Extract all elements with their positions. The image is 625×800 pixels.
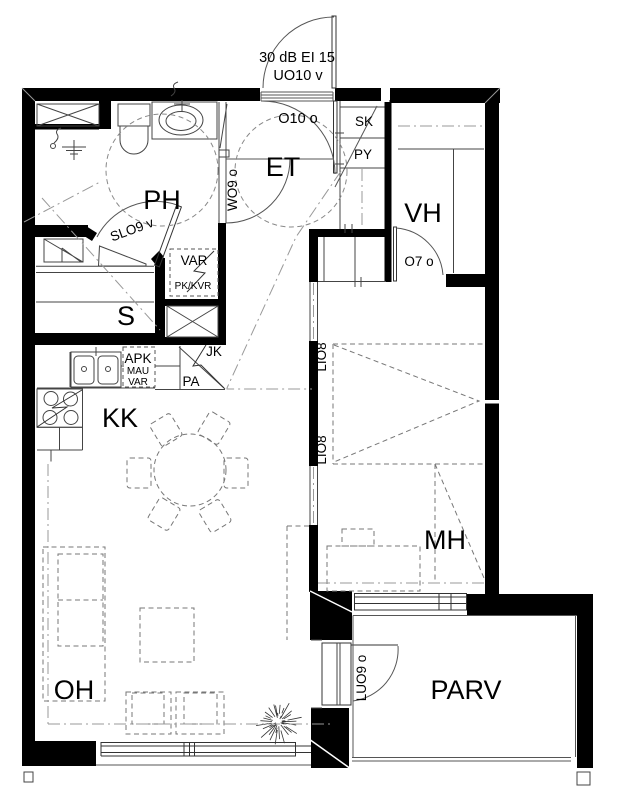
svg-text:LIO8: LIO8 (314, 342, 329, 371)
svg-text:VAR: VAR (128, 377, 148, 388)
svg-text:MH: MH (424, 525, 466, 555)
svg-text:SK: SK (355, 114, 373, 129)
svg-text:PARV: PARV (430, 675, 501, 705)
svg-text:PH: PH (143, 185, 181, 215)
svg-text:S: S (117, 301, 135, 331)
svg-text:30 dB EI 15: 30 dB EI 15 (259, 50, 335, 66)
svg-text:OH: OH (54, 675, 95, 705)
svg-text:KK: KK (102, 403, 138, 433)
svg-text:VAR: VAR (181, 253, 208, 268)
svg-text:WO9 o: WO9 o (225, 169, 240, 211)
svg-text:LIO8: LIO8 (314, 435, 329, 464)
svg-text:PY: PY (354, 147, 372, 162)
svg-text:PA: PA (182, 374, 199, 389)
svg-text:APK: APK (124, 351, 151, 366)
svg-text:JK: JK (206, 344, 222, 359)
svg-text:UO10 v: UO10 v (273, 68, 323, 84)
svg-text:VH: VH (404, 198, 442, 228)
svg-text:O7 o: O7 o (404, 254, 433, 269)
svg-text:LUO9 o: LUO9 o (354, 655, 369, 702)
svg-text:MAU: MAU (127, 366, 149, 377)
svg-text:ET: ET (266, 152, 301, 182)
svg-text:O10 o: O10 o (278, 111, 318, 127)
svg-text:PK/KVR: PK/KVR (175, 281, 212, 292)
